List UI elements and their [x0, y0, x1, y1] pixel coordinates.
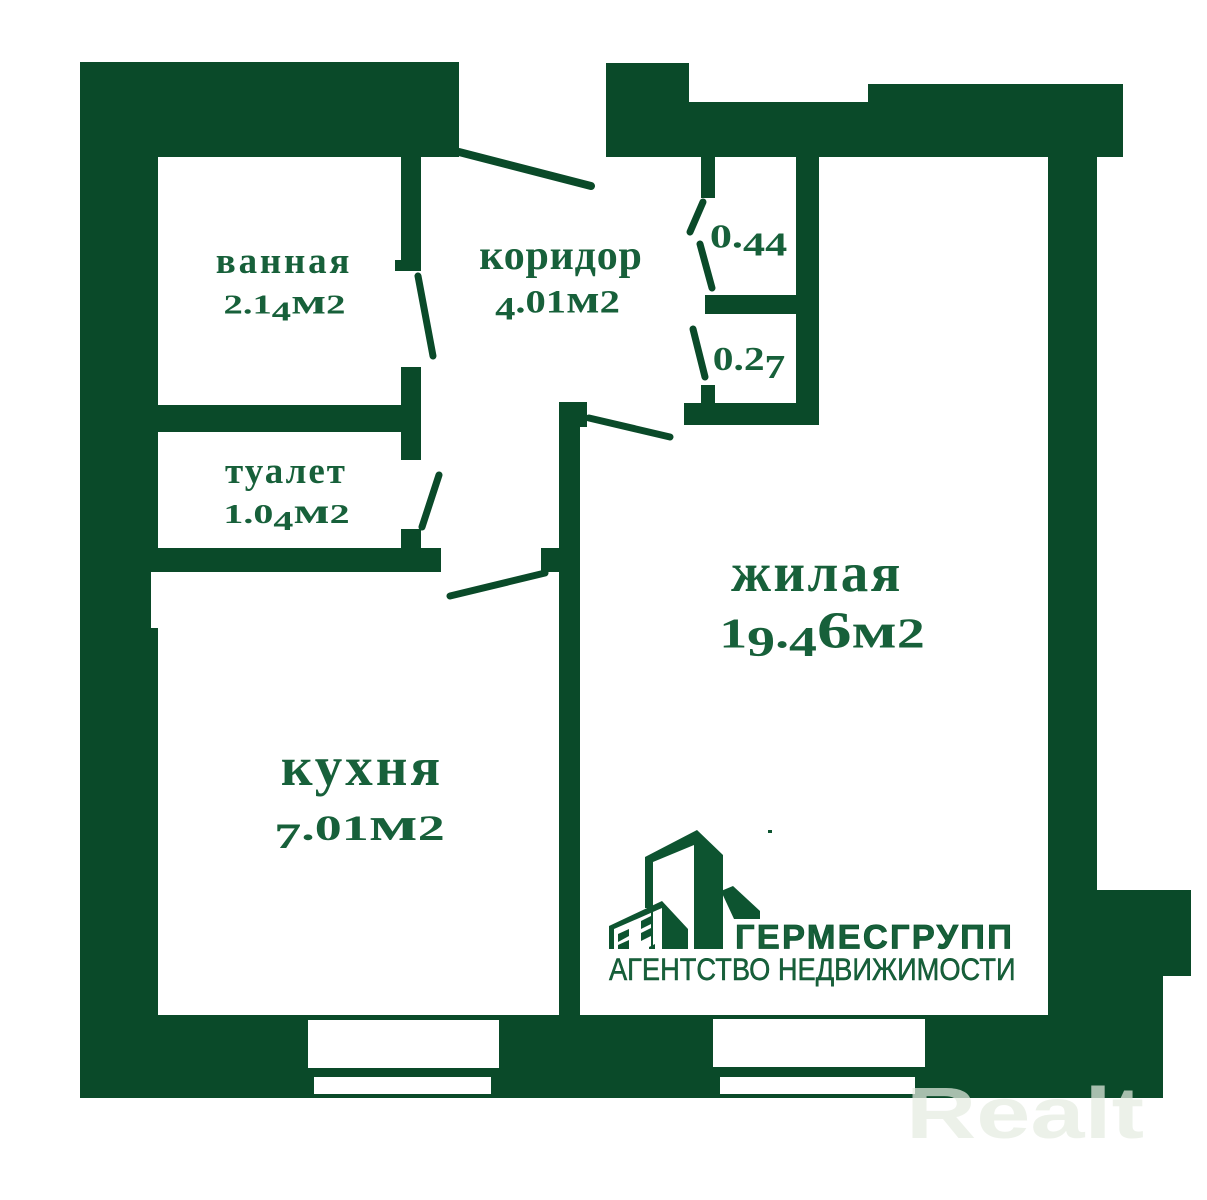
svg-text:19.46м2: 19.46м2	[719, 602, 925, 666]
svg-text:ванная: ванная	[216, 241, 352, 282]
svg-text:туалет: туалет	[225, 451, 347, 492]
svg-text:кухня: кухня	[281, 736, 443, 797]
svg-text:7.01м2: 7.01м2	[274, 798, 444, 856]
svg-text:Realt: Realt	[906, 1074, 1144, 1154]
svg-text:0.44: 0.44	[710, 217, 787, 263]
svg-text:4.01м2: 4.01м2	[495, 277, 620, 328]
svg-text:2.14м2: 2.14м2	[224, 281, 346, 327]
svg-text:1.04м2: 1.04м2	[223, 491, 349, 537]
svg-text:АГЕНТСТВО НЕДВИЖИМОСТИ: АГЕНТСТВО НЕДВИЖИМОСТИ	[609, 952, 1016, 987]
svg-text:коридор: коридор	[479, 233, 642, 279]
svg-text:0.27: 0.27	[713, 340, 786, 386]
svg-text:ГЕРМЕСГРУПП: ГЕРМЕСГРУПП	[735, 919, 1014, 957]
svg-text:жилая: жилая	[731, 542, 903, 603]
